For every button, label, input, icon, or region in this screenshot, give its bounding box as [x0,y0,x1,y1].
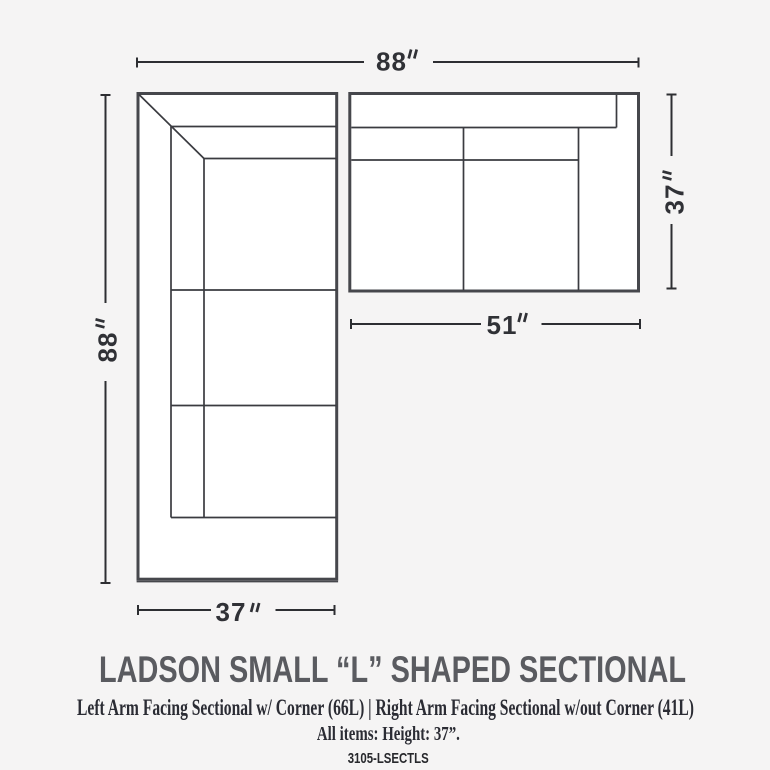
svg-text:51: 51 [487,310,518,340]
svg-text:3105-LSECTLS: 3105-LSECTLS [348,750,429,767]
svg-text:LADSON SMALL “L” SHAPED SECTIO: LADSON SMALL “L” SHAPED SECTIONAL [99,649,686,690]
svg-text:All items: Height: 37”.: All items: Height: 37”. [317,723,460,745]
svg-text:88: 88 [93,332,123,363]
svg-text:88: 88 [376,47,407,77]
svg-text:37: 37 [660,184,690,215]
svg-text:37: 37 [216,597,247,627]
svg-text:Left Arm Facing Sectional w/ C: Left Arm Facing Sectional w/ Corner (66L… [77,695,694,720]
